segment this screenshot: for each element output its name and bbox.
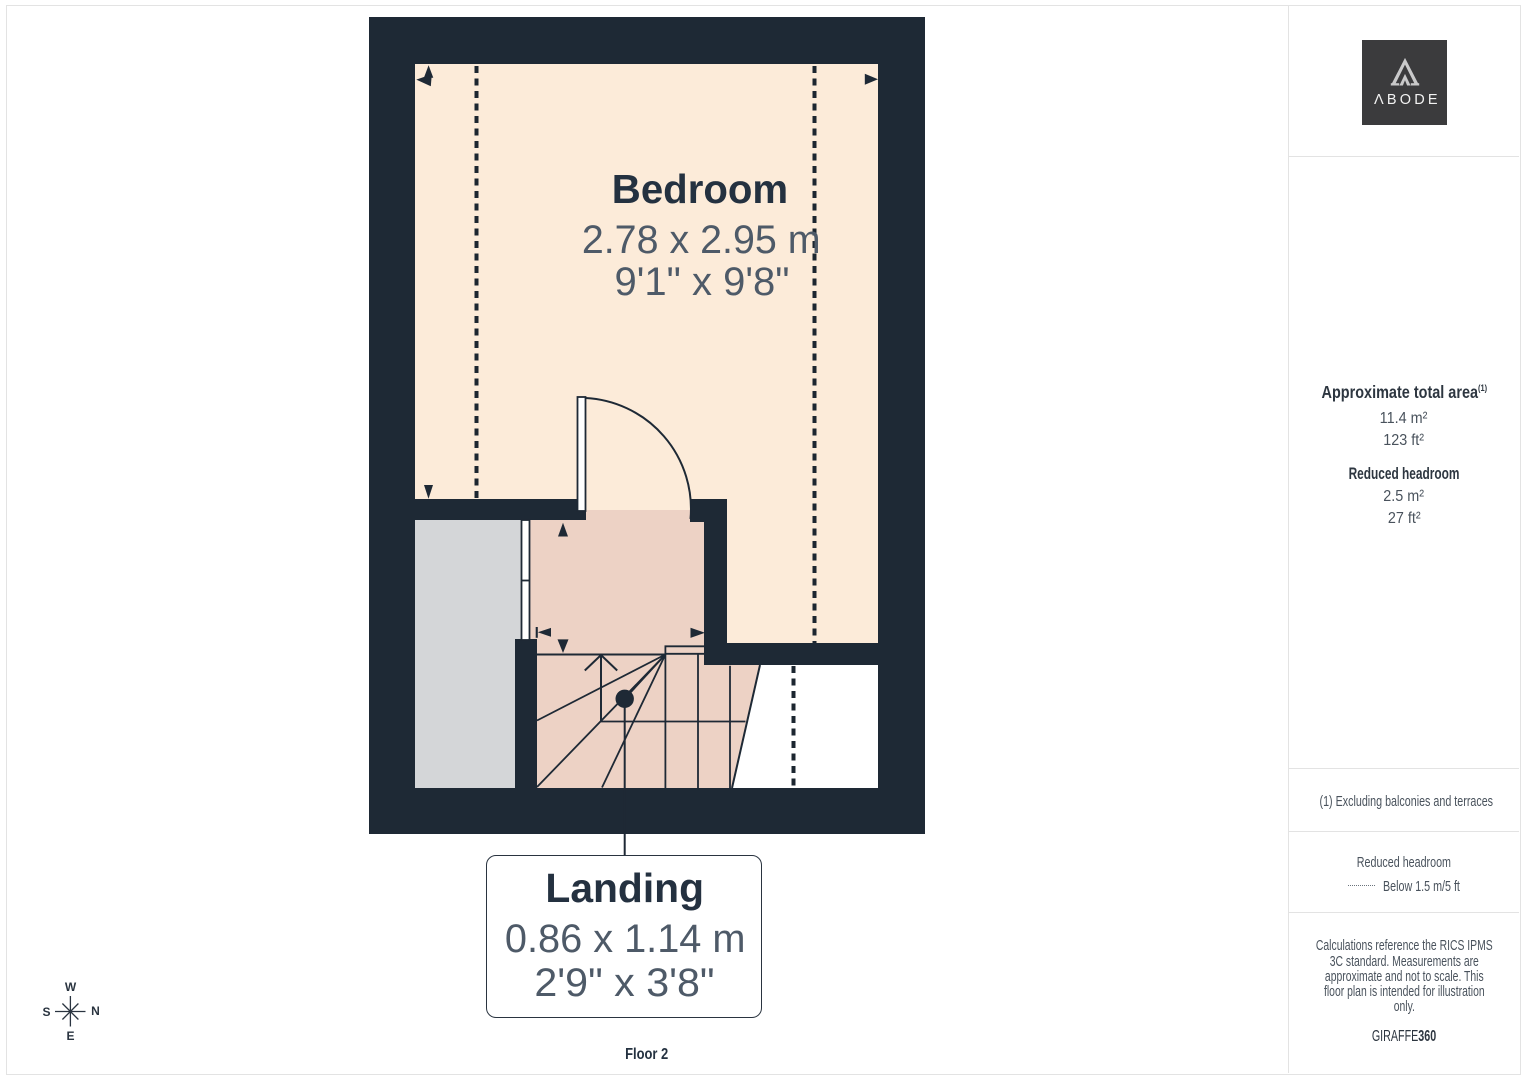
svg-text:ΛBODE: ΛBODE — [1374, 92, 1441, 108]
